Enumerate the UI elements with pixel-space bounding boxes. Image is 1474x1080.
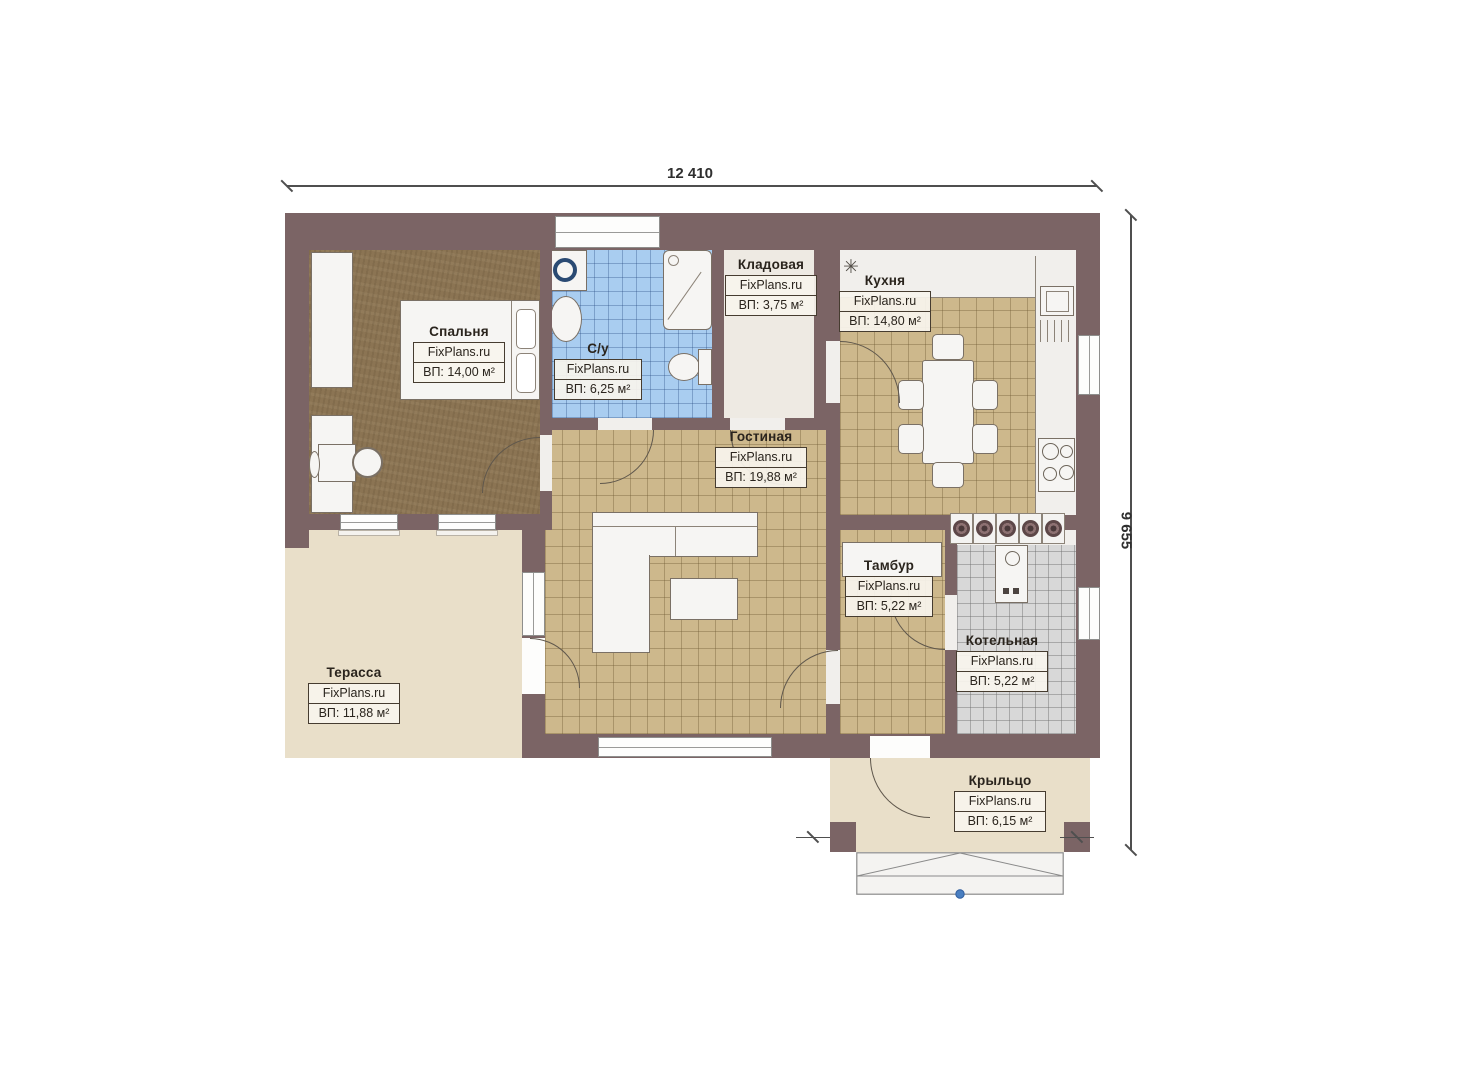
radiator-section [950,513,973,544]
counter-edge [1035,256,1036,515]
room-label-kitchen: Кухня FixPlans.ru ВП: 14,80 м² [836,273,934,332]
mirror [309,451,320,478]
room-brand: FixPlans.ru [308,683,400,704]
window-living-bottom [598,737,772,757]
sink-basin [1046,291,1069,312]
wall-bedroom-terrace [285,514,552,530]
room-name: Крыльцо [950,773,1050,788]
window-boiler-right [1078,587,1100,640]
room-brand: FixPlans.ru [839,291,931,312]
door-opening-kitchen [826,341,840,403]
stove [1038,438,1075,492]
boiler-knob [1003,588,1009,594]
room-brand: FixPlans.ru [554,359,642,380]
radiator-cap [976,520,993,537]
room-name: Гостиная [710,429,812,444]
outer-wall-left [285,213,309,548]
radiator-cap [1022,520,1039,537]
room-area: ВП: 14,00 м² [413,362,505,383]
room-label-storage: Кладовая FixPlans.ru ВП: 3,75 м² [722,257,820,316]
radiator-section [1019,513,1042,544]
window-sill [436,530,498,536]
window-bedroom-terrace [438,514,496,530]
pillow [516,309,536,349]
chair [352,447,383,478]
chair [972,424,998,454]
room-brand: FixPlans.ru [956,651,1048,672]
burner [1043,467,1057,481]
room-label-terrace: Терасса FixPlans.ru ВП: 11,88 м² [304,665,404,724]
chair [932,462,964,488]
room-label-boiler: Котельная FixPlans.ru ВП: 5,22 м² [952,633,1052,692]
room-brand: FixPlans.ru [845,576,933,597]
door-opening-bathroom [598,418,652,430]
dimension-width-label: 12 410 [285,165,1095,182]
washing-machine-door [553,258,577,282]
burner [1042,443,1059,460]
dining-table [922,360,974,464]
room-area: ВП: 6,25 м² [554,379,642,400]
porch-steps [856,852,1064,900]
window-living-terrace [522,572,545,636]
room-area: ВП: 3,75 м² [725,295,817,316]
coffee-table [670,578,738,620]
outer-wall-top [285,213,1100,250]
sofa-seam [675,526,676,556]
room-name: Тамбур [840,558,938,573]
dimension-height-label: 9 655 [1118,509,1135,553]
door-opening-bedroom [540,435,552,491]
burner [1059,465,1074,480]
chair [932,334,964,360]
room-brand: FixPlans.ru [715,447,807,468]
room-brand: FixPlans.ru [954,791,1046,812]
shower-head [668,255,679,266]
window-bedroom-terrace [340,514,398,530]
room-name: С/у [550,341,646,356]
desk [318,444,356,482]
window-kitchen-right [1078,335,1100,395]
room-name: Кухня [836,273,934,288]
window-sill [338,530,400,536]
radiator-section [973,513,996,544]
room-name: Спальня [404,324,514,339]
room-label-bathroom: С/у FixPlans.ru ВП: 6,25 м² [550,341,646,400]
room-name: Терасса [304,665,404,680]
radiator-row [950,513,1070,544]
room-area: ВП: 5,22 м² [956,671,1048,692]
room-area: ВП: 6,15 м² [954,811,1046,832]
toilet-bowl [668,353,700,381]
wardrobe [311,252,353,388]
room-area: ВП: 11,88 м² [308,703,400,724]
room-label-bedroom: Спальня FixPlans.ru ВП: 14,00 м² [404,324,514,383]
dimension-line-top [287,185,1097,187]
room-area: ВП: 5,22 м² [845,596,933,617]
sofa [592,512,758,557]
drainboard [1040,320,1074,342]
chair [972,380,998,410]
kitchen-sink [1040,286,1074,316]
pillow [516,353,536,393]
floor-plan-canvas: ✳ [0,0,1474,1080]
radiator-section [996,513,1019,544]
room-label-living: Гостиная FixPlans.ru ВП: 19,88 м² [710,429,812,488]
boiler-gauge [1005,551,1020,566]
radiator-section [1042,513,1065,544]
radiator-cap [999,520,1016,537]
room-name: Котельная [952,633,1052,648]
porch-pillar-left [830,822,856,852]
toilet-tank [698,349,712,385]
radiator-cap [953,520,970,537]
room-label-tambour: Тамбур FixPlans.ru ВП: 5,22 м² [840,558,938,617]
sink [550,296,582,342]
room-brand: FixPlans.ru [725,275,817,296]
window-top [555,216,660,248]
terrace-floor [285,530,545,758]
boiler-knob [1013,588,1019,594]
room-name: Кладовая [722,257,820,272]
burner [1060,445,1073,458]
boiler-unit [995,545,1028,603]
room-brand: FixPlans.ru [413,342,505,363]
door-opening-porch [870,736,930,758]
sofa-chaise [592,555,650,653]
chair [898,424,924,454]
marker-dot [956,890,964,898]
shower-diagonal [667,272,701,320]
chair [898,380,924,410]
room-area: ВП: 19,88 м² [715,467,807,488]
room-area: ВП: 14,80 м² [839,311,931,332]
shower [663,250,712,330]
radiator-cap [1045,520,1062,537]
room-label-porch: Крыльцо FixPlans.ru ВП: 6,15 м² [950,773,1050,832]
outer-wall-right [1076,213,1100,758]
